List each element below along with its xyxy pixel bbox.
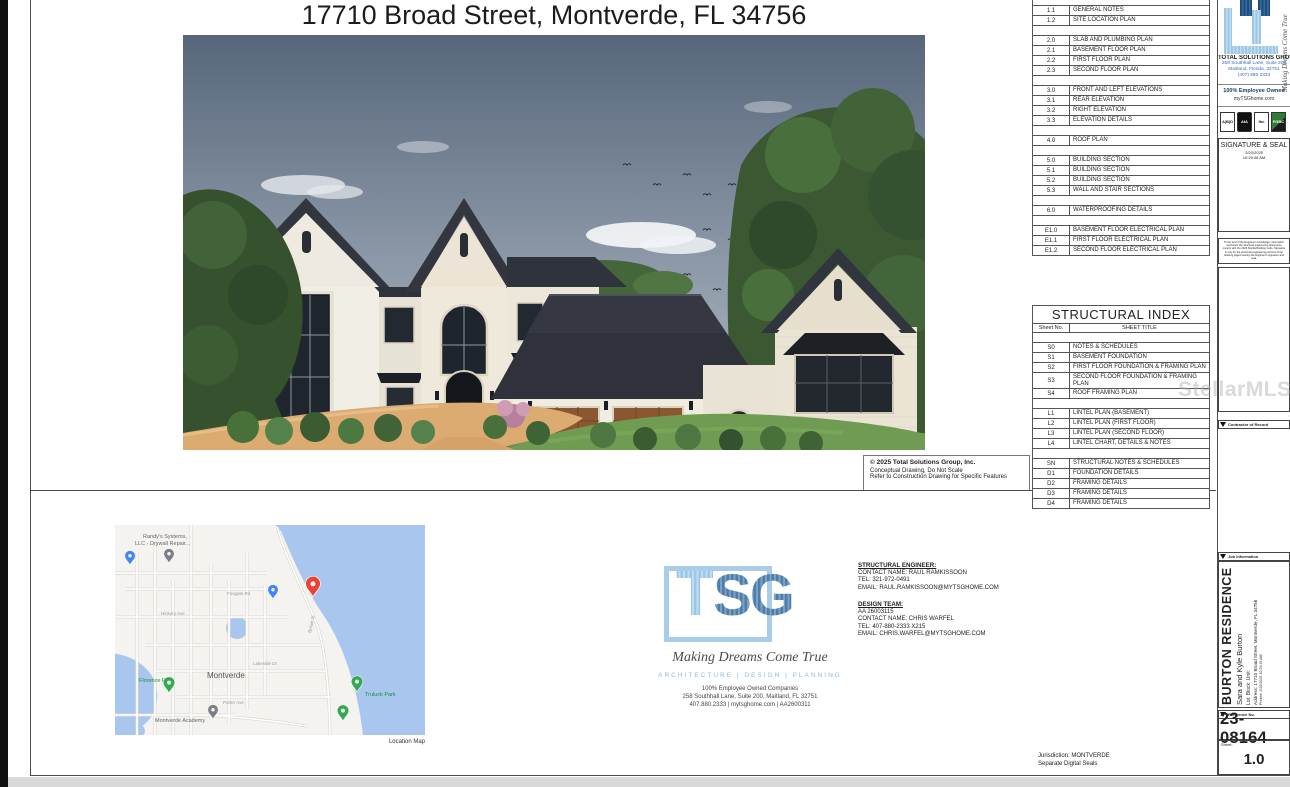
sheet-label: Sheet: (1219, 741, 1289, 747)
index-row: S0NOTES & SCHEDULES (1033, 343, 1209, 353)
index-row: L2LINTEL PLAN (FIRST FLOOR) (1033, 419, 1209, 429)
tb-association-badges: A|B|DAIAfbcFGBC (1218, 110, 1290, 133)
tsg-logo: TSG (676, 556, 793, 630)
signature-seal-box: SIGNATURE & SEAL 2/20/2025 10:29:46 AM (1218, 138, 1290, 232)
index-row-title: FIRST FLOOR ELECTRICAL PLAN (1070, 236, 1209, 245)
index-row-title (1069, 449, 1209, 458)
index-row-no: S3 (1033, 373, 1070, 388)
index-row-no: S4 (1033, 389, 1070, 398)
index-row-title: STRUCTURAL NOTES & SCHEDULES (1070, 459, 1209, 468)
dt-contact: CONTACT NAME: CHRIS WARFEL (858, 616, 1018, 624)
tb-website: myTSGhome.com (1218, 96, 1290, 102)
index-row-title: SITE LOCATION PLAN (1070, 16, 1209, 25)
index-row: L1LINTEL PLAN (BASEMENT) (1033, 409, 1209, 419)
index-row-title (1069, 76, 1209, 85)
index-row: E1.2SECOND FLOOR ELECTRICAL PLAN (1033, 246, 1209, 255)
architectural-cover-sheet: 17710 Broad Street, Montverde, FL 34756 (0, 0, 1290, 787)
index-row-title (1069, 26, 1209, 35)
index-row-no: S2 (1033, 363, 1070, 372)
index-row-no: L1 (1033, 409, 1070, 418)
index-row-no: 3.3 (1033, 116, 1070, 125)
index-row-no: 5.3 (1033, 186, 1070, 195)
tb-logo-frame-fragment (1252, 10, 1261, 44)
index-row-title: FIRST FLOOR FOUNDATION & FRAMING PLAN (1070, 363, 1209, 372)
tsg-services-line: ARCHITECTURE | DESIGN | PLANNING (640, 672, 860, 679)
sheet-left-border (30, 0, 31, 776)
dt-tel: TEL: 407-880-2333 X215 (858, 624, 1018, 632)
rendering-caption: © 2025 Total Solutions Group, Inc. Conce… (863, 455, 1030, 490)
index-row-no: 2.2 (1033, 56, 1070, 65)
map-caption: Location Map (115, 739, 425, 745)
index-row (1033, 449, 1209, 459)
signature-title: SIGNATURE & SEAL (1219, 142, 1289, 149)
index-row-title: SECOND FLOOR ELECTRICAL PLAN (1070, 246, 1209, 255)
index-row: 3.1REAR ELEVATION (1033, 96, 1209, 106)
tsg-address-3: 407.880.2333 | mytsghome.com | AA2600311 (640, 702, 860, 708)
index-row-title (1069, 126, 1209, 135)
location-map: Randy's Systems,LLC - Drywall Repair...F… (115, 525, 425, 735)
index-row: 3.0FRONT AND LEFT ELEVATIONS (1033, 86, 1209, 96)
reference-number-box: 23-08164 (1218, 718, 1290, 740)
index-row-title: BUILDING SECTION (1070, 176, 1209, 185)
engineer-disclaimer: To the best of the Engineer's knowledge,… (1218, 238, 1290, 264)
index-row-no (1033, 146, 1069, 155)
index-row (1033, 26, 1209, 36)
structural-engineer-block: STRUCTURAL ENGINEER: CONTACT NAME: RAUL … (858, 562, 1018, 592)
index-row-no (1033, 126, 1069, 135)
se-tel: TEL: 321-972-0491 (858, 577, 1018, 585)
index-row (1033, 216, 1209, 226)
tsg-tagline: Making Dreams Come True (640, 650, 860, 666)
index-row (1033, 76, 1209, 86)
index-row-no: 2.3 (1033, 66, 1070, 75)
index-row-title: FRONT AND LEFT ELEVATIONS (1070, 86, 1209, 95)
col-sheet-no: Sheet No. (1033, 324, 1070, 332)
design-team-block: DESIGN TEAM: AA 26003115 CONTACT NAME: C… (858, 601, 1018, 639)
contractor-of-record-header: Contractor of Record (1218, 420, 1290, 429)
triangle-marker-icon (1220, 554, 1226, 559)
index-row-no: D3 (1033, 489, 1070, 498)
tb-logo-frame-fragment (1224, 46, 1278, 54)
index-row-title: SECOND FLOOR PLAN (1070, 66, 1209, 75)
index-row-no: L2 (1033, 419, 1070, 428)
index-row-title: GENERAL NOTES (1070, 6, 1209, 15)
index-row: 2.1BASEMENT FLOOR PLAN (1033, 46, 1209, 56)
index-row-title (1069, 0, 1209, 5)
index-row-no: L4 (1033, 439, 1070, 448)
index-row-title: ROOF PLAN (1070, 136, 1209, 145)
index-row: 5.1BUILDING SECTION (1033, 166, 1209, 176)
index-row: 1.2SITE LOCATION PLAN (1033, 16, 1209, 26)
tsg-letter-t: T (676, 557, 713, 629)
index-row-title: RIGHT ELEVATION (1070, 106, 1209, 115)
jurisdiction-note: Jurisdiction: MONTVERDE Separate Digital… (1038, 752, 1110, 768)
index-row-title: LINTEL PLAN (FIRST FLOOR) (1070, 419, 1209, 428)
index-row: SNSTRUCTURAL NOTES & SCHEDULES (1033, 459, 1209, 469)
index-row-title: BUILDING SECTION (1070, 166, 1209, 175)
index-row-no: S0 (1033, 343, 1070, 352)
structural-index-title: STRUCTURAL INDEX (1033, 306, 1209, 324)
sheet-index-table: 1.1GENERAL NOTES1.2SITE LOCATION PLAN2.0… (1032, 0, 1210, 256)
index-row: 2.3SECOND FLOOR PLAN (1033, 66, 1209, 76)
map-label: Fosgate Rd (227, 591, 251, 596)
dt-heading: DESIGN TEAM: (858, 601, 1018, 609)
index-row-no (1033, 26, 1069, 35)
col-sheet-title: SHEET TITLE (1070, 324, 1209, 332)
index-row-no: D4 (1033, 499, 1070, 508)
index-row: L4LINTEL CHART, DETAILS & NOTES (1033, 439, 1209, 449)
aia-badge-icon: AIA (1237, 112, 1252, 132)
index-row-title: LINTEL CHART, DETAILS & NOTES (1070, 439, 1209, 448)
index-row-title: WALL AND STAIR SECTIONS (1070, 186, 1209, 195)
index-row: 5.3WALL AND STAIR SECTIONS (1033, 186, 1209, 196)
index-row-no: L3 (1033, 429, 1070, 438)
index-row-no (1033, 76, 1069, 85)
index-row-no: E1.0 (1033, 226, 1070, 235)
index-row-title (1069, 399, 1209, 408)
index-row (1033, 126, 1209, 136)
page-title: 17710 Broad Street, Montverde, FL 34756 (183, 0, 925, 31)
index-row: 6.0WATERPROOFING DETAILS (1033, 206, 1209, 216)
index-row: S2FIRST FLOOR FOUNDATION & FRAMING PLAN (1033, 363, 1209, 373)
index-row-title: BASEMENT FOUNDATION (1070, 353, 1209, 362)
map-label: Hickory Ave (161, 611, 185, 616)
index-row-no: 1.2 (1033, 16, 1070, 25)
page-left-black-strip (0, 0, 8, 787)
jurisdiction-line2: Separate Digital Seals (1038, 760, 1110, 768)
tb-logo-letter-fragment (1240, 0, 1252, 16)
job-address: Address: 17710 Broad Street, Montverde, … (1253, 562, 1258, 705)
index-row: 2.2FIRST FLOOR PLAN (1033, 56, 1209, 66)
tb-divider (1218, 84, 1290, 85)
index-row: 2.0SLAB AND PLUMBING PLAN (1033, 36, 1209, 46)
job-owner-names: Sara and Kyle Burton (1235, 585, 1244, 705)
map-label: Lakeside Dr (253, 661, 278, 666)
index-row-title (1069, 196, 1209, 205)
index-row-title: FIRST FLOOR PLAN (1070, 56, 1209, 65)
dt-license: AA 26003115 (858, 609, 1018, 617)
index-row-no: SN (1033, 459, 1070, 468)
index-row: D2FRAMING DETAILS (1033, 479, 1209, 489)
index-row-no (1033, 216, 1069, 225)
job-printed-stamp: Printed: 2/20/2025 10:29:45 AM (1259, 562, 1263, 705)
index-row: 3.2RIGHT ELEVATION (1033, 106, 1209, 116)
index-row-title: FOUNDATION DETAILS (1070, 469, 1209, 478)
index-row-title: WATERPROOFING DETAILS (1070, 206, 1209, 215)
index-row-title: FRAMING DETAILS (1070, 499, 1209, 508)
triangle-marker-icon (1220, 422, 1226, 427)
index-row-title: LINTEL PLAN (BASEMENT) (1070, 409, 1209, 418)
job-information-box: BURTON RESIDENCE Sara and Kyle Burton Lo… (1218, 561, 1290, 708)
house-rendering (183, 35, 925, 450)
tsg-address-1: 100% Employee Owned Companies (640, 686, 860, 692)
sheet-bottom-border (30, 775, 1290, 776)
index-row: E1.0BASEMENT FLOOR ELECTRICAL PLAN (1033, 226, 1209, 236)
structural-index-header: Sheet No. SHEET TITLE (1033, 324, 1209, 333)
index-row-title: SECOND FLOOR FOUNDATION & FRAMING PLAN (1070, 373, 1209, 388)
job-lot-block-unit: Lot: Block: Unit: (1246, 587, 1252, 705)
sheet-number: 1.0 (1219, 751, 1289, 768)
index-row-no: E1.1 (1033, 236, 1070, 245)
index-row-no: 3.0 (1033, 86, 1070, 95)
index-row: 3.3ELEVATION DETAILS (1033, 116, 1209, 126)
tb-divider (1218, 106, 1290, 107)
map-label: Porter Ave (223, 700, 244, 705)
index-row (1033, 196, 1209, 206)
index-row: D1FOUNDATION DETAILS (1033, 469, 1209, 479)
index-row-title: BUILDING SECTION (1070, 156, 1209, 165)
index-row-title: BASEMENT FLOOR PLAN (1070, 46, 1209, 55)
index-row: 4.0ROOF PLAN (1033, 136, 1209, 146)
index-row-title (1069, 216, 1209, 225)
map-label: Truluck Park (365, 692, 396, 698)
index-row-title: FRAMING DETAILS (1070, 479, 1209, 488)
page-bottom-gray-strip (8, 777, 1290, 787)
job-header-label: Job Information (1228, 554, 1258, 559)
index-row-no (1033, 399, 1069, 408)
index-row-title: LINTEL PLAN (SECOND FLOOR) (1070, 429, 1209, 438)
se-heading: STRUCTURAL ENGINEER: (858, 562, 1018, 570)
index-row-title: ROOF FRAMING PLAN (1070, 389, 1209, 398)
tsg-address-2: 258 Southhall Lane, Suite 200, Maitland,… (640, 694, 860, 700)
tsg-letters-sg: SG (713, 563, 793, 628)
index-row (1033, 333, 1209, 343)
index-row: S3SECOND FLOOR FOUNDATION & FRAMING PLAN (1033, 373, 1209, 389)
caption-copyright: © 2025 Total Solutions Group, Inc. (870, 459, 1029, 466)
index-row-no: 5.2 (1033, 176, 1070, 185)
index-row-title: SLAB AND PLUMBING PLAN (1070, 36, 1209, 45)
job-information-header: Job Information (1218, 552, 1290, 561)
caption-line3: Refer to Construction Drawing for Specif… (870, 474, 1029, 480)
index-row-no: 3.1 (1033, 96, 1070, 105)
se-contact: CONTACT NAME: RAUL RAMKISSOON (858, 570, 1018, 578)
tb-employee-owned: 100% Employee Owned (1218, 88, 1290, 94)
index-row-no: 5.1 (1033, 166, 1070, 175)
index-row-title (1069, 333, 1209, 342)
map-label: Randy's Systems, (143, 534, 187, 540)
index-row-title: BASEMENT FLOOR ELECTRICAL PLAN (1070, 226, 1209, 235)
index-row-no: 2.0 (1033, 36, 1070, 45)
contacts-block: STRUCTURAL ENGINEER: CONTACT NAME: RAUL … (858, 562, 1018, 639)
jurisdiction-line1: Jurisdiction: MONTVERDE (1038, 752, 1110, 760)
fgbc-badge-icon: FGBC (1271, 112, 1286, 132)
index-row: 5.0BUILDING SECTION (1033, 156, 1209, 166)
map-label: Montverde Academy (155, 718, 205, 724)
dt-email: EMAIL: CHRIS.WARFEL@MYTSGHOME.COM (858, 631, 1018, 639)
index-row-title: NOTES & SCHEDULES (1070, 343, 1209, 352)
job-residence-name: BURTON RESIDENCE (1220, 562, 1234, 705)
index-row-no: 5.0 (1033, 156, 1070, 165)
index-row-no: 6.0 (1033, 206, 1070, 215)
index-row: D4FRAMING DETAILS (1033, 499, 1209, 508)
index-row: E1.1FIRST FLOOR ELECTRICAL PLAN (1033, 236, 1209, 246)
sheet-number-box: Sheet: 1.0 (1218, 740, 1290, 775)
index-row-title: REAR ELEVATION (1070, 96, 1209, 105)
index-row-no: 1.1 (1033, 6, 1070, 15)
index-row (1033, 146, 1209, 156)
index-row-no (1033, 196, 1069, 205)
index-row (1033, 399, 1209, 409)
index-row-title: FRAMING DETAILS (1070, 489, 1209, 498)
contractor-header-label: Contractor of Record (1228, 422, 1268, 427)
index-row: 1.1GENERAL NOTES (1033, 6, 1209, 16)
map-label: Montverde (207, 671, 245, 680)
index-row: L3LINTEL PLAN (SECOND FLOOR) (1033, 429, 1209, 439)
index-row-title (1069, 146, 1209, 155)
index-row-no: 3.2 (1033, 106, 1070, 115)
index-row: S4ROOF FRAMING PLAN (1033, 389, 1209, 399)
seal-empty-box (1218, 267, 1290, 412)
index-row-no (1033, 0, 1069, 5)
se-email: EMAIL: RAUL.RAMKISSOON@MYTSGHOME.COM (858, 585, 1018, 593)
aibd-badge-icon: A|B|D (1220, 112, 1235, 132)
tb-company-block: TOTAL SOLUTIONS GROUP 258 Southhall Lane… (1218, 55, 1290, 79)
map-label: LLC - Drywall Repair... (135, 541, 190, 547)
structural-index-table: STRUCTURAL INDEX Sheet No. SHEET TITLE S… (1032, 305, 1210, 509)
index-row: D3FRAMING DETAILS (1033, 489, 1209, 499)
index-row-no: 4.0 (1033, 136, 1070, 145)
index-row-title: ELEVATION DETAILS (1070, 116, 1209, 125)
index-row: 5.2BUILDING SECTION (1033, 176, 1209, 186)
index-row-no: E1.2 (1033, 246, 1070, 255)
job-owners-group: Sara and Kyle Burton Lot: Block: Unit: (1235, 585, 1252, 705)
index-row-no: D1 (1033, 469, 1070, 478)
index-row-no (1033, 333, 1069, 342)
index-row-no: 2.1 (1033, 46, 1070, 55)
index-row-no (1033, 449, 1069, 458)
tb-company-phone: (407) 880 2333 (1218, 73, 1290, 79)
index-row: S1BASEMENT FOUNDATION (1033, 353, 1209, 363)
index-row-no: D2 (1033, 479, 1070, 488)
signature-time: 10:29:46 AM (1219, 155, 1289, 160)
fbc-badge-icon: fbc (1254, 112, 1269, 132)
index-row-no: S1 (1033, 353, 1070, 362)
